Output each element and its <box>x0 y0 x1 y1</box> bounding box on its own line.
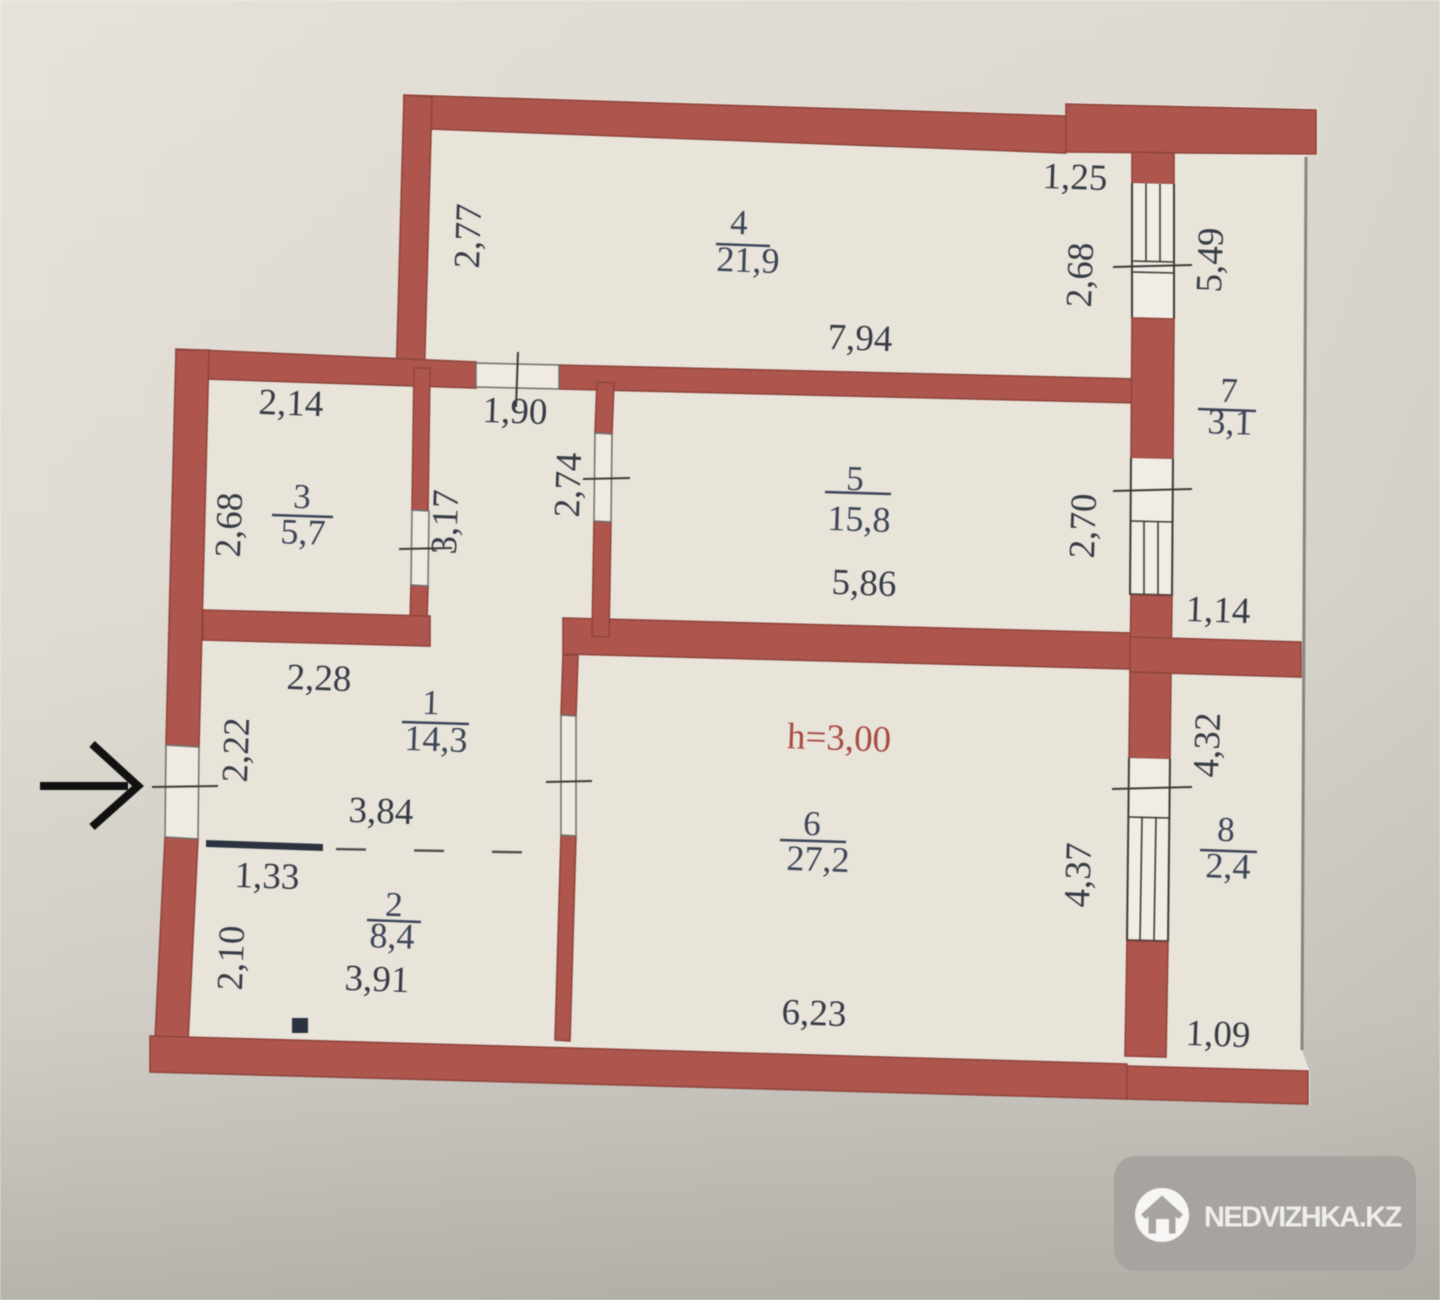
svg-text:7,94: 7,94 <box>827 317 893 360</box>
svg-text:3,84: 3,84 <box>348 790 414 833</box>
svg-text:5,86: 5,86 <box>831 562 897 605</box>
svg-text:4,37: 4,37 <box>1057 842 1100 908</box>
svg-text:2,68: 2,68 <box>1059 242 1102 308</box>
svg-text:14,3: 14,3 <box>404 718 468 760</box>
svg-text:21,9: 21,9 <box>716 239 780 281</box>
svg-text:27,2: 27,2 <box>786 838 850 880</box>
svg-text:8: 8 <box>1217 810 1236 850</box>
svg-text:4: 4 <box>730 203 749 243</box>
svg-text:2,70: 2,70 <box>1062 493 1105 559</box>
svg-text:1: 1 <box>422 683 441 723</box>
svg-text:1,33: 1,33 <box>234 855 300 898</box>
svg-text:2,28: 2,28 <box>286 657 352 700</box>
svg-text:1,14: 1,14 <box>1185 589 1251 632</box>
svg-text:h=3,00: h=3,00 <box>786 716 891 761</box>
svg-text:3,1: 3,1 <box>1207 401 1253 443</box>
svg-text:5,7: 5,7 <box>280 511 326 553</box>
svg-text:3,17: 3,17 <box>424 489 467 555</box>
svg-text:3: 3 <box>293 477 312 517</box>
svg-text:1,90: 1,90 <box>482 390 548 433</box>
svg-text:2,4: 2,4 <box>1205 845 1251 887</box>
svg-text:4,32: 4,32 <box>1186 712 1229 778</box>
svg-text:2,74: 2,74 <box>547 452 590 518</box>
svg-text:NEDVIZHKA.KZ: NEDVIZHKA.KZ <box>1204 1202 1402 1234</box>
svg-text:1,25: 1,25 <box>1042 156 1108 199</box>
svg-text:2,77: 2,77 <box>447 203 490 269</box>
svg-text:2,22: 2,22 <box>215 717 258 783</box>
svg-text:1,09: 1,09 <box>1185 1013 1251 1056</box>
svg-text:2,10: 2,10 <box>210 925 253 991</box>
svg-text:15,8: 15,8 <box>827 498 891 540</box>
svg-text:6: 6 <box>803 804 822 844</box>
svg-text:2,68: 2,68 <box>208 492 251 558</box>
svg-text:3,91: 3,91 <box>344 958 410 1001</box>
svg-text:2,14: 2,14 <box>258 382 324 425</box>
svg-text:6,23: 6,23 <box>781 992 847 1035</box>
svg-text:5,49: 5,49 <box>1189 227 1232 293</box>
svg-text:8,4: 8,4 <box>369 915 415 957</box>
